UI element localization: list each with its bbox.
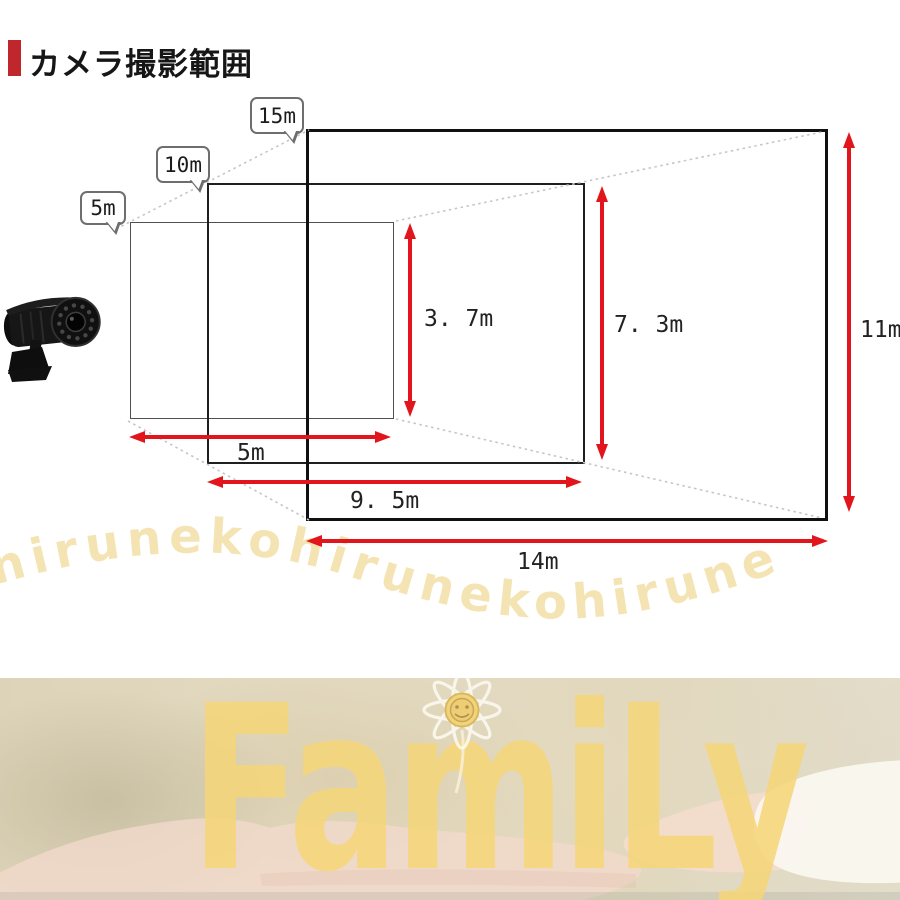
security-camera-icon: [0, 286, 112, 384]
distance-bubble-5m-label: 5m: [90, 196, 115, 220]
dim-arrow-height-15m: [843, 132, 855, 512]
banner-art: FamiLy: [0, 678, 900, 900]
width-label-5m: 5m: [237, 440, 265, 466]
header: カメラ撮影範囲: [0, 0, 900, 90]
distance-bubble-15m: 15m: [250, 97, 304, 134]
dim-arrow-height-5m: [404, 223, 416, 417]
ray-top-left: [116, 130, 309, 229]
dim-arrow-width-15m: [306, 535, 828, 547]
distance-bubble-10m: 10m: [156, 146, 210, 183]
ray-top-right: [396, 132, 822, 221]
width-label-15m: 14m: [517, 549, 559, 575]
family-photo-banner: FamiLy: [0, 678, 900, 900]
height-label-10m: 7. 3m: [614, 312, 683, 338]
distance-bubble-10m-label: 10m: [164, 153, 202, 177]
camera-body-group: [1, 293, 102, 353]
camera-range-diagram: 5m 10m 15m 3. 7m 7. 3m 11m 5m 9. 5m 14m: [0, 0, 900, 660]
title-accent-bar: [8, 40, 21, 76]
height-label-15m: 11m: [860, 317, 900, 343]
dim-arrow-height-10m: [596, 186, 608, 460]
dim-arrow-width-10m: [207, 476, 582, 488]
dimension-arrows: [129, 132, 855, 547]
distance-bubble-5m: 5m: [80, 191, 126, 225]
page-title: カメラ撮影範囲: [29, 39, 253, 84]
width-label-10m: 9. 5m: [350, 488, 419, 514]
height-label-5m: 3. 7m: [424, 306, 493, 332]
ray-bottom-right: [396, 419, 822, 518]
distance-bubble-15m-label: 15m: [258, 104, 296, 128]
